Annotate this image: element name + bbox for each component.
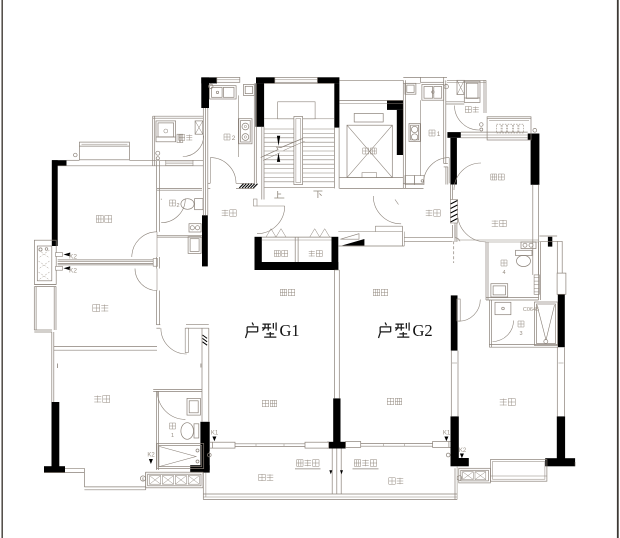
- svg-text:K2: K2: [69, 267, 77, 274]
- svg-text:2: 2: [232, 135, 236, 142]
- svg-text:1: 1: [437, 131, 441, 138]
- svg-text:K1: K1: [443, 431, 451, 437]
- svg-text:G2: G2: [413, 321, 433, 340]
- svg-text:K2: K2: [69, 254, 77, 261]
- svg-text:2: 2: [176, 203, 179, 209]
- svg-text:3: 3: [519, 331, 522, 337]
- svg-text:4: 4: [502, 270, 505, 276]
- svg-text:K2: K2: [459, 448, 467, 454]
- svg-text:C0645: C0645: [523, 307, 539, 313]
- svg-text:1: 1: [171, 433, 174, 439]
- svg-text:K2: K2: [147, 453, 155, 459]
- svg-text:K1: K1: [211, 431, 219, 437]
- svg-text:G1: G1: [280, 321, 300, 340]
